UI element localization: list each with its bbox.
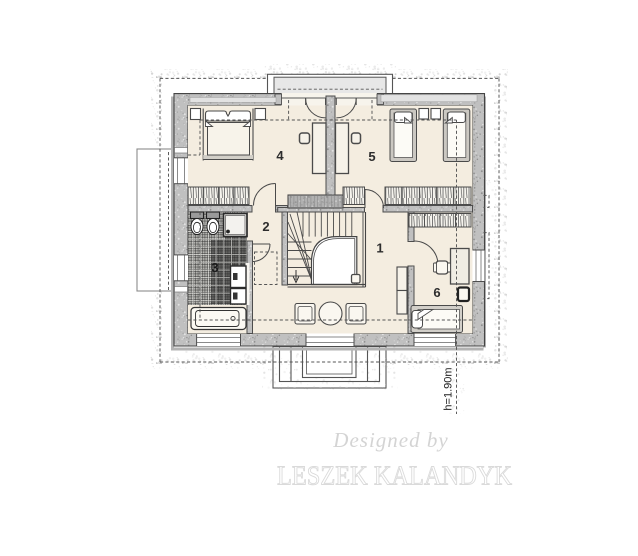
svg-text:1: 1 — [376, 241, 383, 256]
svg-text:Designed by: Designed by — [332, 428, 448, 452]
svg-text:6: 6 — [433, 285, 440, 300]
svg-text:LESZEK KALANDYK: LESZEK KALANDYK — [277, 461, 512, 491]
svg-text:4: 4 — [276, 148, 284, 163]
svg-text:h=1.90m: h=1.90m — [443, 367, 455, 410]
svg-text:3: 3 — [211, 260, 218, 275]
svg-text:2: 2 — [262, 219, 269, 234]
svg-text:5: 5 — [368, 149, 375, 164]
